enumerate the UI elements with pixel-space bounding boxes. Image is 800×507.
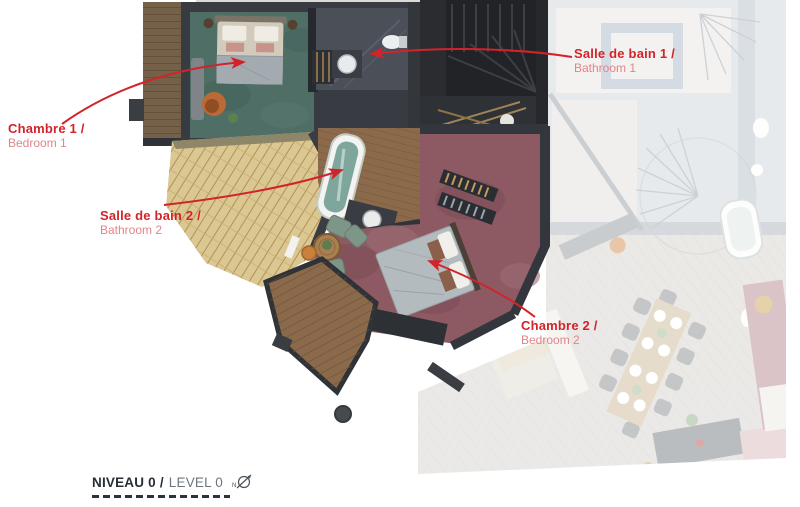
floor-plan-rendering	[0, 0, 800, 507]
label-bathroom1-title: Salle de bain 1 /	[574, 46, 675, 61]
label-bathroom1: Salle de bain 1 / Bathroom 1	[574, 46, 675, 75]
bedroom2-stool	[302, 246, 316, 260]
label-bathroom2-subtitle: Bathroom 2	[100, 223, 201, 237]
label-bathroom2-title: Salle de bain 2 /	[100, 208, 201, 223]
label-bedroom2-subtitle: Bedroom 2	[521, 333, 598, 347]
level-title-block: NIVEAU 0 / LEVEL 0 N	[92, 473, 255, 498]
label-bedroom2-title: Chambre 2 /	[521, 318, 598, 333]
compass-north-letter: N	[232, 483, 237, 489]
tree-marker	[335, 406, 351, 422]
dashed-underline	[92, 495, 230, 498]
staircase	[420, 0, 542, 96]
level-label-en: LEVEL 0	[169, 475, 223, 490]
label-bathroom1-subtitle: Bathroom 1	[574, 61, 675, 75]
label-bedroom2: Chambre 2 / Bedroom 2	[521, 318, 598, 347]
north-compass-icon: N	[231, 473, 255, 491]
label-bedroom1-subtitle: Bedroom 1	[8, 136, 85, 150]
level-label-fr: NIVEAU 0 /	[92, 475, 164, 490]
floorplan-page: Chambre 1 / Bedroom 1 Salle de bain 1 / …	[0, 0, 800, 507]
label-bedroom1-title: Chambre 1 /	[8, 121, 85, 136]
label-bedroom1: Chambre 1 / Bedroom 1	[8, 121, 85, 150]
label-bathroom2: Salle de bain 2 / Bathroom 2	[100, 208, 201, 237]
